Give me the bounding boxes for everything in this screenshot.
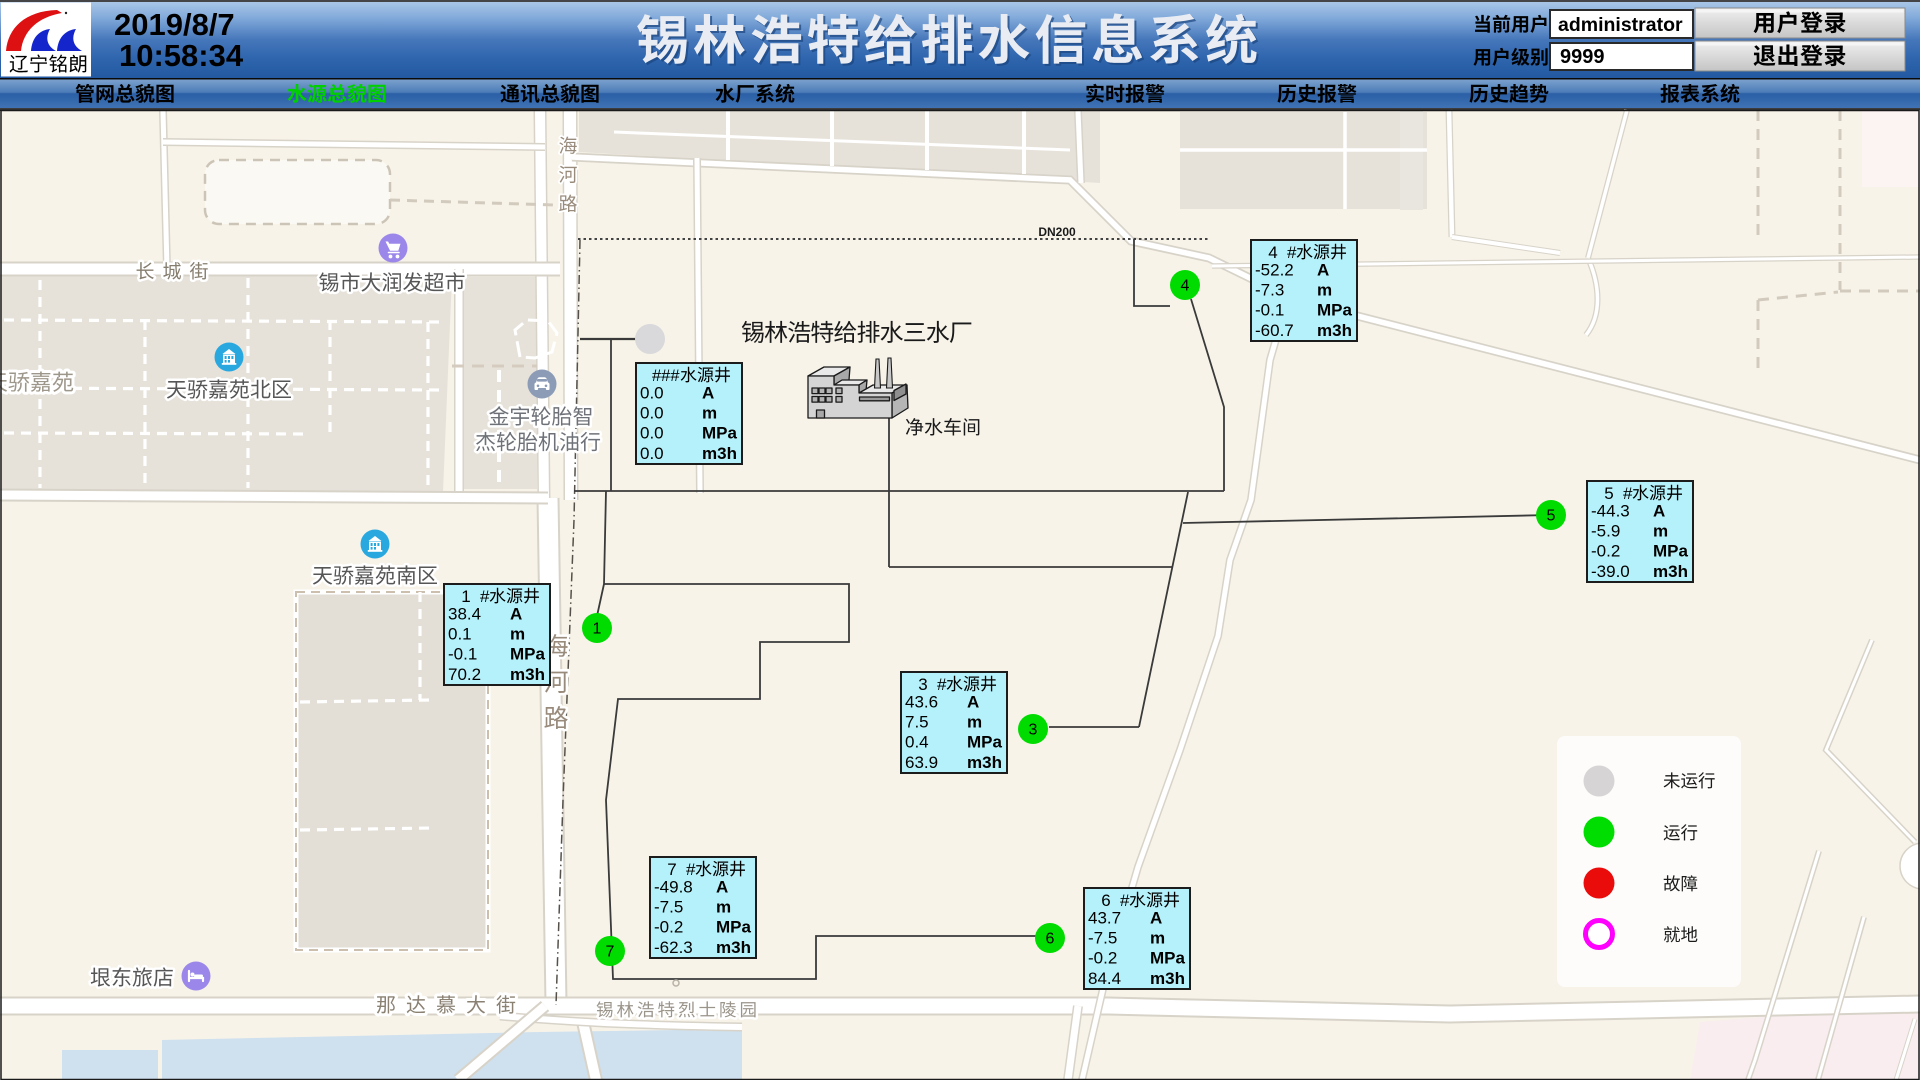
svg-text:10:58:34: 10:58:34 [119,38,244,73]
svg-text:m3h: m3h [967,753,1002,772]
svg-text:-7.3: -7.3 [1255,281,1284,300]
svg-text:m3h: m3h [1653,562,1688,581]
svg-text:m3h: m3h [702,444,737,463]
svg-text:#: # [1120,891,1130,910]
svg-text:#: # [937,675,947,694]
svg-text:#: # [686,860,696,879]
svg-text:7: 7 [606,944,615,961]
svg-text:m3h: m3h [510,665,545,684]
svg-text:A: A [1317,261,1329,280]
svg-text:MPa: MPa [702,424,738,443]
svg-text:DN200: DN200 [1038,225,1076,239]
svg-text:MPa: MPa [1150,949,1186,968]
svg-text:m3h: m3h [716,938,751,957]
svg-text:0.4: 0.4 [905,733,929,752]
svg-text:m: m [1653,522,1668,541]
svg-text:3: 3 [1029,722,1038,739]
svg-text:84.4: 84.4 [1088,969,1121,988]
svg-text:administrator: administrator [1558,14,1683,36]
svg-text:7: 7 [667,860,676,879]
svg-text:A: A [1150,909,1162,928]
svg-text:m: m [716,898,731,917]
svg-text:0.0: 0.0 [640,424,664,443]
svg-text:-7.5: -7.5 [1088,929,1117,948]
svg-text:3: 3 [918,675,927,694]
svg-text:4: 4 [1268,243,1277,262]
svg-text:4: 4 [1181,278,1190,295]
svg-text:MPa: MPa [1653,542,1689,561]
svg-text:m: m [510,625,525,644]
svg-text:-0.2: -0.2 [1088,949,1117,968]
svg-text:0.1: 0.1 [448,625,472,644]
svg-text:43.7: 43.7 [1088,909,1121,928]
svg-text:70.2: 70.2 [448,665,481,684]
svg-text:38.4: 38.4 [448,605,481,624]
svg-text:MPa: MPa [510,645,546,664]
svg-text:A: A [716,878,728,897]
svg-text:-62.3: -62.3 [654,938,693,957]
svg-text:m: m [967,713,982,732]
svg-text:m: m [702,404,717,423]
svg-text:m: m [1317,281,1332,300]
svg-text:6: 6 [1046,931,1055,948]
svg-text:1: 1 [461,587,470,606]
svg-text:m: m [1150,929,1165,948]
svg-text:0.0: 0.0 [640,404,664,423]
svg-text:1: 1 [593,621,602,638]
svg-text:5: 5 [1604,484,1613,503]
svg-text:###: ### [652,367,680,385]
svg-text:43.6: 43.6 [905,693,938,712]
svg-text:63.9: 63.9 [905,753,938,772]
svg-text:#: # [1287,243,1297,262]
svg-text:#: # [480,587,490,606]
svg-text:-0.2: -0.2 [1591,542,1620,561]
svg-text:-0.1: -0.1 [448,645,477,664]
svg-text:-0.2: -0.2 [654,918,683,937]
svg-text:5: 5 [1547,508,1556,525]
svg-text:-60.7: -60.7 [1255,321,1294,340]
svg-text:-39.0: -39.0 [1591,562,1630,581]
svg-text:m3h: m3h [1150,969,1185,988]
svg-text:A: A [510,605,522,624]
svg-text:0.0: 0.0 [640,384,664,403]
svg-text:-49.8: -49.8 [654,878,693,897]
svg-text:-7.5: -7.5 [654,898,683,917]
svg-text:2019/8/7: 2019/8/7 [114,7,235,42]
svg-text:A: A [967,693,979,712]
svg-text:9999: 9999 [1560,46,1605,68]
svg-text:0.0: 0.0 [640,444,664,463]
svg-text:7.5: 7.5 [905,713,929,732]
svg-text:MPa: MPa [716,918,752,937]
svg-text:-44.3: -44.3 [1591,502,1630,521]
svg-text:MPa: MPa [967,733,1003,752]
svg-text:6: 6 [1101,891,1110,910]
svg-text:-52.2: -52.2 [1255,261,1294,280]
svg-text:A: A [1653,502,1665,521]
svg-text:m3h: m3h [1317,321,1352,340]
svg-text:#: # [1623,484,1633,503]
svg-text:MPa: MPa [1317,301,1353,320]
svg-text:-0.1: -0.1 [1255,301,1284,320]
svg-text:A: A [702,384,714,403]
svg-text:-5.9: -5.9 [1591,522,1620,541]
